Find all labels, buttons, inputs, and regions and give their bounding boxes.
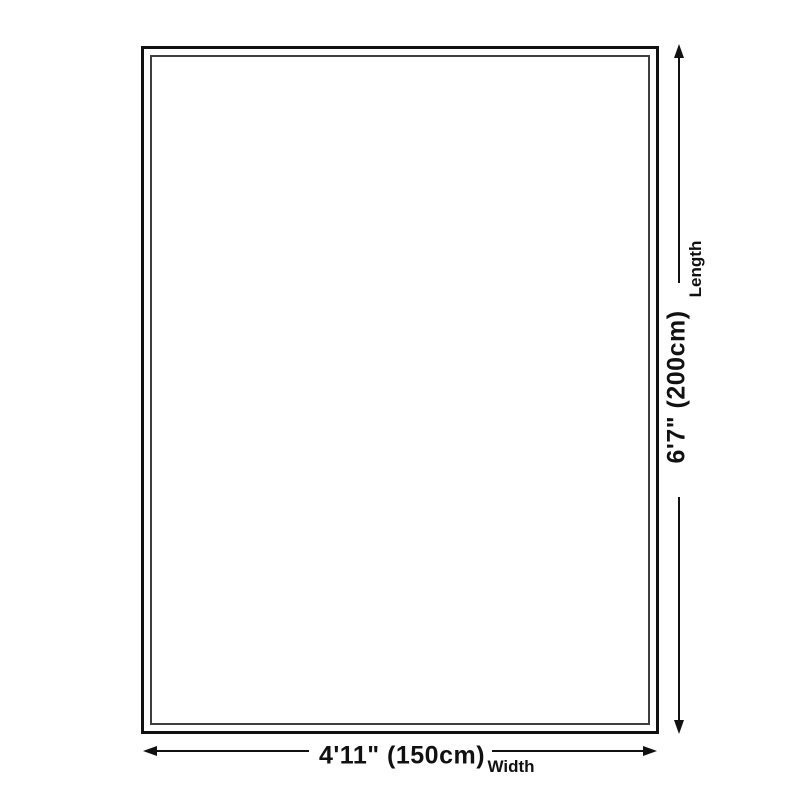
- rug-inner-border: [150, 55, 650, 725]
- rug-outline: [141, 46, 659, 734]
- arrow-down-icon: [674, 720, 684, 734]
- length-dimension-line-lower: [678, 497, 680, 721]
- length-dimension-line-upper: [678, 57, 680, 283]
- arrow-left-icon: [143, 746, 157, 756]
- arrow-right-icon: [643, 746, 657, 756]
- arrow-up-icon: [674, 44, 684, 58]
- width-axis-label: Width: [487, 757, 534, 777]
- length-axis-label: Length: [686, 241, 706, 298]
- width-value: 4'11" (150cm): [319, 742, 485, 771]
- length-value: 6'7" (200cm): [663, 310, 692, 463]
- size-diagram: Length 6'7" (200cm) 4'11" (150cm) Width: [0, 0, 800, 800]
- width-dimension-line-right: [492, 750, 644, 752]
- width-dimension-line-left: [156, 750, 309, 752]
